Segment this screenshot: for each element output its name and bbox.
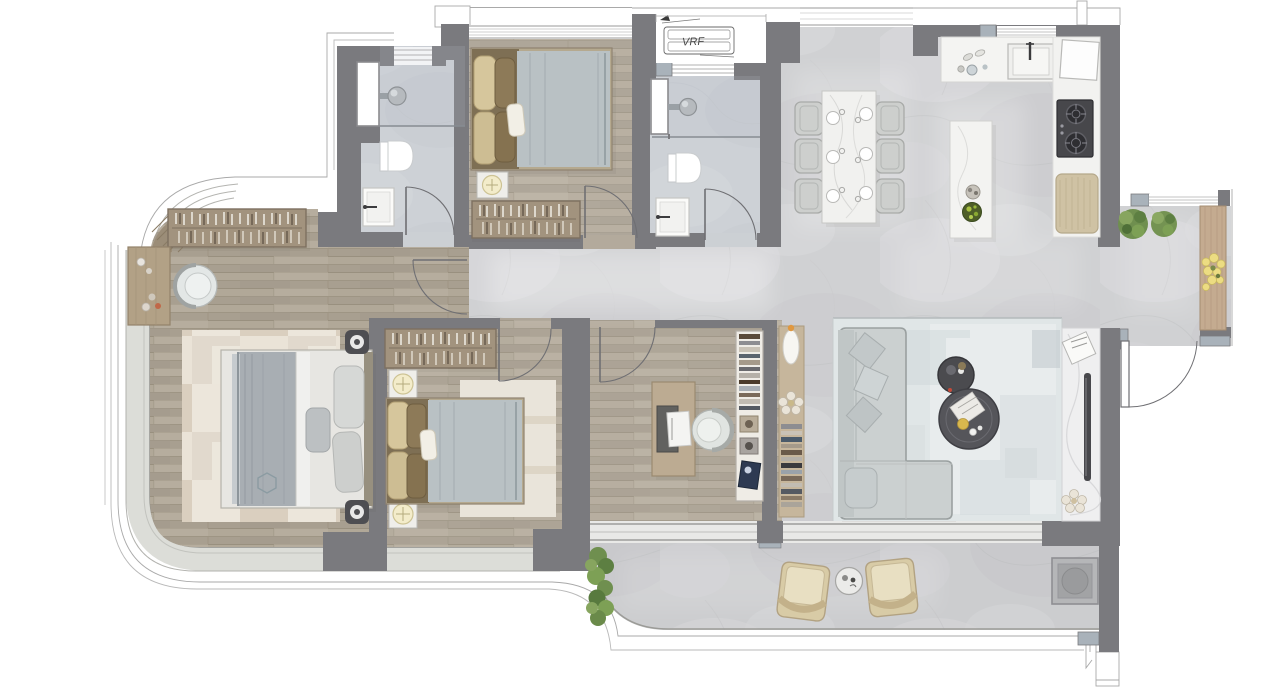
svg-text:VRF: VRF	[682, 36, 706, 49]
